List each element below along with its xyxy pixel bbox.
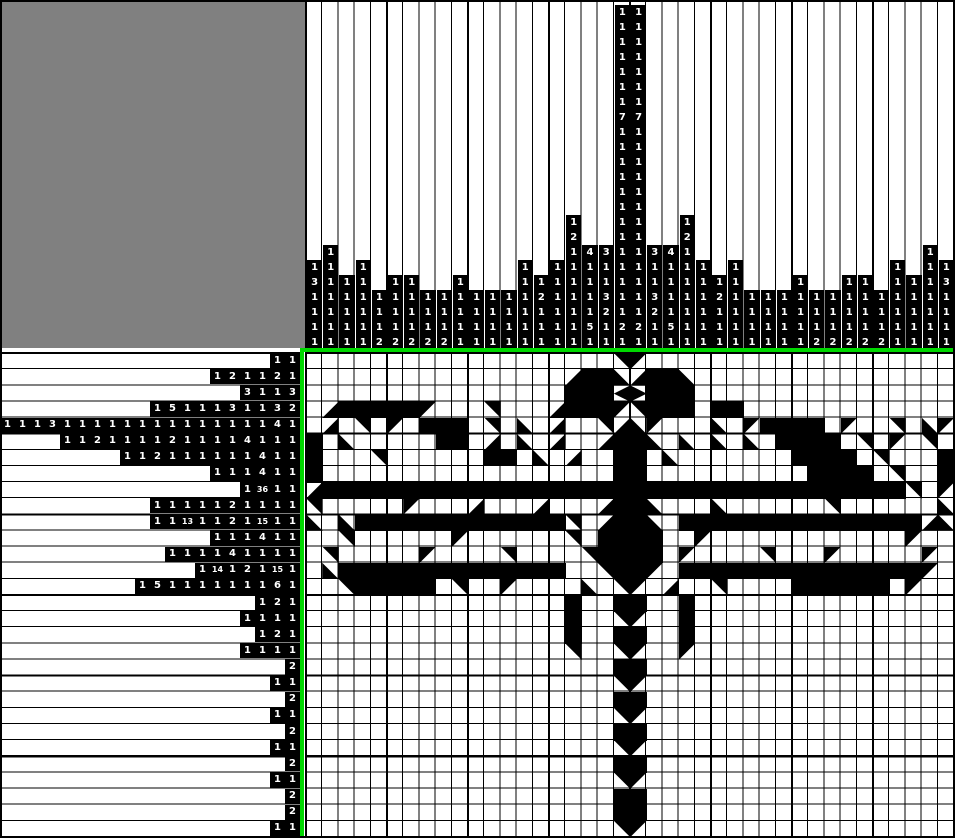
- row-clue-cell[interactable]: 4: [225, 547, 240, 562]
- grid-cell-full-square[interactable]: [743, 514, 760, 531]
- row-clue-cell[interactable]: 4: [255, 450, 270, 465]
- grid-cell-full-square[interactable]: [549, 563, 566, 580]
- grid-cell-full-square[interactable]: [419, 418, 436, 435]
- row-clue-cell[interactable]: 2: [150, 450, 165, 465]
- col-clue-cell[interactable]: 1: [615, 305, 630, 320]
- row-clue-cell[interactable]: 2: [285, 401, 300, 416]
- row-clue-cell[interactable]: 1: [285, 563, 300, 578]
- col-clue-cell[interactable]: 1: [534, 275, 549, 290]
- col-clue-cell[interactable]: 1: [647, 275, 662, 290]
- row-clue-cell[interactable]: 2: [225, 498, 240, 513]
- row-clue-cell[interactable]: 2: [225, 369, 240, 384]
- row-clue-cell[interactable]: 1: [210, 369, 225, 384]
- grid-cell-full-square[interactable]: [598, 401, 615, 418]
- col-clue-cell[interactable]: 2: [680, 230, 695, 245]
- col-clue-cell[interactable]: 3: [647, 245, 662, 260]
- row-clue-cell[interactable]: 1: [210, 434, 225, 449]
- grid-cell-full-square[interactable]: [565, 401, 582, 418]
- grid-cell-full-square[interactable]: [711, 514, 728, 531]
- grid-cell-full-square[interactable]: [371, 401, 388, 418]
- row-clue-cell[interactable]: 1: [285, 353, 300, 368]
- col-clue-cell[interactable]: 1: [550, 290, 565, 305]
- col-clue-cell[interactable]: 1: [890, 275, 905, 290]
- col-clue-cell[interactable]: 1: [356, 305, 371, 320]
- grid-cell-full-square[interactable]: [646, 369, 663, 386]
- col-clue-cell[interactable]: 1: [518, 320, 533, 335]
- row-clue-cell[interactable]: 1: [60, 434, 75, 449]
- col-clue-cell[interactable]: 1: [631, 50, 646, 65]
- col-clue-cell[interactable]: 1: [501, 305, 516, 320]
- col-clue-cell[interactable]: 1: [388, 290, 403, 305]
- row-clue-cell[interactable]: 1: [255, 401, 270, 416]
- row-clue-cell[interactable]: 1: [270, 514, 285, 529]
- row-clue-cell[interactable]: 1: [255, 595, 270, 610]
- row-clue-cell[interactable]: 1: [285, 740, 300, 755]
- col-clue-cell[interactable]: 1: [566, 245, 581, 260]
- col-clue-cell[interactable]: 1: [631, 305, 646, 320]
- grid-cell-full-square[interactable]: [614, 692, 631, 709]
- grid-cell-full-square[interactable]: [581, 385, 598, 402]
- grid-cell-full-square[interactable]: [792, 579, 809, 596]
- grid-cell-full-square[interactable]: [841, 563, 858, 580]
- row-clue-cell[interactable]: 1: [285, 547, 300, 562]
- row-clue-cell[interactable]: 1: [210, 418, 225, 433]
- grid-cell-full-square[interactable]: [679, 482, 696, 499]
- row-clue-cell[interactable]: 4: [270, 418, 285, 433]
- grid-cell-full-square[interactable]: [743, 482, 760, 499]
- row-clue-cell[interactable]: 1: [195, 450, 210, 465]
- row-clue-cell[interactable]: 1: [255, 369, 270, 384]
- col-clue-cell[interactable]: 1: [842, 275, 857, 290]
- grid-cell-full-square[interactable]: [387, 563, 404, 580]
- grid-cell-full-square[interactable]: [662, 369, 679, 386]
- col-clue-cell[interactable]: 1: [372, 290, 387, 305]
- col-clue-cell[interactable]: 5: [582, 320, 597, 335]
- col-clue-cell[interactable]: 1: [761, 305, 776, 320]
- row-clue-cell[interactable]: 1: [225, 579, 240, 594]
- grid-cell-full-square[interactable]: [760, 563, 777, 580]
- col-clue-cell[interactable]: 2: [631, 320, 646, 335]
- col-clue-cell[interactable]: 1: [599, 275, 614, 290]
- row-clue-cell[interactable]: 6: [270, 579, 285, 594]
- col-clue-cell[interactable]: 1: [404, 320, 419, 335]
- col-clue-cell[interactable]: 1: [825, 320, 840, 335]
- row-clue-cell[interactable]: 1: [255, 434, 270, 449]
- col-clue-cell[interactable]: 1: [696, 275, 711, 290]
- row-clue-cell[interactable]: 1: [195, 579, 210, 594]
- row-clue-cell[interactable]: 1: [150, 434, 165, 449]
- grid-cell-full-square[interactable]: [403, 514, 420, 531]
- row-clue-cell[interactable]: 3: [45, 418, 60, 433]
- row-clue-cell[interactable]: 1: [105, 434, 120, 449]
- col-clue-cell[interactable]: 1: [356, 275, 371, 290]
- grid-cell-full-square[interactable]: [452, 418, 469, 435]
- row-clue-cell[interactable]: 1: [285, 676, 300, 691]
- col-clue-cell[interactable]: 1: [631, 95, 646, 110]
- grid-cell-full-square[interactable]: [549, 514, 566, 531]
- grid-cell-full-square[interactable]: [808, 514, 825, 531]
- col-clue-cell[interactable]: 1: [420, 305, 435, 320]
- col-clue-cell[interactable]: 1: [890, 320, 905, 335]
- col-clue-cell[interactable]: 2: [534, 290, 549, 305]
- grid-cell-full-square[interactable]: [630, 450, 647, 467]
- row-clue-cell[interactable]: 1: [240, 643, 255, 658]
- row-clue-cell[interactable]: 3: [270, 401, 285, 416]
- col-clue-cell[interactable]: 1: [485, 290, 500, 305]
- row-clue-cell[interactable]: 1: [210, 450, 225, 465]
- grid-cell-full-square[interactable]: [598, 369, 615, 386]
- col-clue-cell[interactable]: 1: [939, 305, 954, 320]
- col-clue-cell[interactable]: 1: [566, 320, 581, 335]
- col-clue-cell[interactable]: 1: [469, 290, 484, 305]
- grid-cell-full-square[interactable]: [614, 724, 631, 741]
- col-clue-cell[interactable]: 1: [323, 320, 338, 335]
- grid-cell-full-square[interactable]: [630, 724, 647, 741]
- grid-cell-full-square[interactable]: [630, 563, 647, 580]
- row-clue-cell[interactable]: 1: [270, 434, 285, 449]
- col-clue-cell[interactable]: 1: [712, 305, 727, 320]
- col-clue-cell[interactable]: 1: [307, 320, 322, 335]
- grid-cell-full-square[interactable]: [484, 514, 501, 531]
- col-clue-cell[interactable]: 1: [663, 260, 678, 275]
- grid-cell-full-square[interactable]: [679, 563, 696, 580]
- grid-cell-full-square[interactable]: [938, 466, 955, 483]
- col-clue-cell[interactable]: 1: [404, 290, 419, 305]
- col-clue-cell[interactable]: 1: [631, 65, 646, 80]
- col-clue-cell[interactable]: 2: [599, 305, 614, 320]
- row-clue-cell[interactable]: 2: [225, 514, 240, 529]
- row-clue-cell[interactable]: 1: [285, 579, 300, 594]
- row-clue-cell[interactable]: 1: [270, 450, 285, 465]
- grid-cell-full-square[interactable]: [306, 450, 323, 467]
- grid-cell-full-square[interactable]: [565, 385, 582, 402]
- grid-cell-full-square[interactable]: [824, 450, 841, 467]
- grid-cell-full-square[interactable]: [338, 563, 355, 580]
- grid-cell-full-square[interactable]: [808, 434, 825, 451]
- row-clue-cell[interactable]: 1: [195, 434, 210, 449]
- col-clue-cell[interactable]: 1: [323, 245, 338, 260]
- grid-cell-full-square[interactable]: [517, 482, 534, 499]
- grid-cell-full-square[interactable]: [938, 450, 955, 467]
- grid-cell-full-square[interactable]: [355, 482, 372, 499]
- grid-cell-full-square[interactable]: [306, 434, 323, 451]
- row-clue-cell[interactable]: 1: [135, 434, 150, 449]
- col-clue-cell[interactable]: 1: [339, 320, 354, 335]
- grid-cell-full-square[interactable]: [711, 563, 728, 580]
- col-clue-cell[interactable]: 2: [566, 230, 581, 245]
- grid-cell-full-square[interactable]: [500, 563, 517, 580]
- grid-cell-full-square[interactable]: [695, 514, 712, 531]
- row-clue-cell[interactable]: 1: [135, 418, 150, 433]
- col-clue-cell[interactable]: 3: [599, 245, 614, 260]
- col-clue-cell[interactable]: 5: [663, 320, 678, 335]
- col-clue-cell[interactable]: 1: [420, 290, 435, 305]
- row-clue-cell[interactable]: 36: [255, 482, 270, 497]
- col-clue-cell[interactable]: 1: [761, 320, 776, 335]
- row-clue-cell[interactable]: 1: [195, 563, 210, 578]
- row-clue-cell[interactable]: 4: [240, 434, 255, 449]
- row-clue-cell[interactable]: 3: [285, 385, 300, 400]
- col-clue-cell[interactable]: 1: [615, 65, 630, 80]
- col-clue-cell[interactable]: 1: [842, 290, 857, 305]
- col-clue-cell[interactable]: 1: [307, 260, 322, 275]
- row-clue-cell[interactable]: 1: [195, 418, 210, 433]
- row-clue-cell[interactable]: 2: [270, 369, 285, 384]
- col-clue-cell[interactable]: 3: [599, 290, 614, 305]
- grid-cell-full-square[interactable]: [824, 482, 841, 499]
- col-clue-cell[interactable]: 1: [615, 140, 630, 155]
- grid-cell-full-square[interactable]: [857, 579, 874, 596]
- grid-cell-full-square[interactable]: [387, 482, 404, 499]
- grid-cell-full-square[interactable]: [679, 595, 696, 612]
- grid-cell-full-square[interactable]: [614, 805, 631, 822]
- row-clue-cell[interactable]: 2: [285, 789, 300, 804]
- col-clue-cell[interactable]: 1: [631, 290, 646, 305]
- grid-cell-full-square[interactable]: [484, 563, 501, 580]
- col-clue-cell[interactable]: 1: [372, 305, 387, 320]
- row-clue-cell[interactable]: 1: [210, 547, 225, 562]
- grid-cell-full-square[interactable]: [824, 466, 841, 483]
- grid-cell-full-square[interactable]: [436, 418, 453, 435]
- col-clue-cell[interactable]: 1: [615, 290, 630, 305]
- col-clue-cell[interactable]: 1: [518, 275, 533, 290]
- grid-cell-full-square[interactable]: [873, 482, 890, 499]
- col-clue-cell[interactable]: 1: [615, 155, 630, 170]
- col-clue-cell[interactable]: 1: [615, 35, 630, 50]
- grid-cell-full-square[interactable]: [662, 401, 679, 418]
- grid-cell-full-square[interactable]: [630, 627, 647, 644]
- col-clue-cell[interactable]: 1: [518, 260, 533, 275]
- row-clue-cell[interactable]: 1: [285, 418, 300, 433]
- grid-cell-full-square[interactable]: [614, 514, 631, 531]
- grid-cell-full-square[interactable]: [857, 514, 874, 531]
- row-clue-cell[interactable]: 5: [150, 579, 165, 594]
- col-clue-cell[interactable]: 3: [307, 275, 322, 290]
- grid-cell-full-square[interactable]: [711, 482, 728, 499]
- row-clue-cell[interactable]: 1: [180, 579, 195, 594]
- grid-cell-full-square[interactable]: [565, 595, 582, 612]
- col-clue-cell[interactable]: 1: [825, 305, 840, 320]
- col-clue-cell[interactable]: 1: [631, 215, 646, 230]
- grid-cell-full-square[interactable]: [630, 547, 647, 564]
- col-clue-cell[interactable]: 1: [906, 320, 921, 335]
- col-clue-cell[interactable]: 1: [339, 305, 354, 320]
- row-clue-cell[interactable]: 1: [0, 418, 15, 433]
- col-clue-cell[interactable]: 1: [420, 320, 435, 335]
- col-clue-cell[interactable]: 1: [582, 305, 597, 320]
- col-clue-cell[interactable]: 1: [825, 290, 840, 305]
- col-clue-cell[interactable]: 1: [809, 320, 824, 335]
- col-clue-cell[interactable]: 1: [923, 290, 938, 305]
- row-clue-cell[interactable]: 1: [105, 418, 120, 433]
- row-clue-cell[interactable]: 1: [210, 514, 225, 529]
- col-clue-cell[interactable]: 1: [744, 290, 759, 305]
- row-clue-cell[interactable]: 15: [255, 514, 270, 529]
- col-clue-cell[interactable]: 1: [356, 290, 371, 305]
- row-clue-cell[interactable]: 4: [255, 466, 270, 481]
- grid-cell-full-square[interactable]: [808, 466, 825, 483]
- row-clue-cell[interactable]: 1: [285, 498, 300, 513]
- col-clue-cell[interactable]: 1: [923, 245, 938, 260]
- col-clue-cell[interactable]: 1: [744, 320, 759, 335]
- col-clue-cell[interactable]: 1: [469, 320, 484, 335]
- grid-cell-full-square[interactable]: [468, 482, 485, 499]
- row-clue-cell[interactable]: 2: [285, 805, 300, 820]
- grid-cell-full-square[interactable]: [598, 547, 615, 564]
- grid-cell-full-square[interactable]: [614, 482, 631, 499]
- row-clue-cell[interactable]: 1: [240, 579, 255, 594]
- grid-cell-full-square[interactable]: [857, 466, 874, 483]
- row-clue-cell[interactable]: 1: [165, 547, 180, 562]
- grid-cell-full-square[interactable]: [873, 563, 890, 580]
- grid-cell-full-square[interactable]: [727, 563, 744, 580]
- row-clue-cell[interactable]: 2: [90, 434, 105, 449]
- row-clue-cell[interactable]: 1: [195, 514, 210, 529]
- col-clue-cell[interactable]: 1: [939, 290, 954, 305]
- col-clue-cell[interactable]: 1: [923, 275, 938, 290]
- col-clue-cell[interactable]: 4: [582, 245, 597, 260]
- grid-cell-full-square[interactable]: [614, 756, 631, 773]
- row-clue-cell[interactable]: 1: [285, 708, 300, 723]
- col-clue-cell[interactable]: 1: [453, 320, 468, 335]
- col-clue-cell[interactable]: 1: [663, 305, 678, 320]
- row-clue-cell[interactable]: 2: [285, 756, 300, 771]
- col-clue-cell[interactable]: 1: [890, 260, 905, 275]
- grid-cell-full-square[interactable]: [517, 514, 534, 531]
- grid-cell-full-square[interactable]: [419, 579, 436, 596]
- col-clue-cell[interactable]: 1: [615, 20, 630, 35]
- row-clue-cell[interactable]: 1: [270, 772, 285, 787]
- col-clue-cell[interactable]: 1: [631, 260, 646, 275]
- grid-cell-full-square[interactable]: [630, 789, 647, 806]
- col-clue-cell[interactable]: 1: [777, 320, 792, 335]
- row-clue-cell[interactable]: 1: [180, 547, 195, 562]
- col-clue-cell[interactable]: 1: [680, 275, 695, 290]
- col-clue-cell[interactable]: 1: [744, 305, 759, 320]
- grid-cell-full-square[interactable]: [841, 450, 858, 467]
- grid-cell-full-square[interactable]: [646, 547, 663, 564]
- col-clue-cell[interactable]: 1: [793, 320, 808, 335]
- col-clue-cell[interactable]: 1: [696, 305, 711, 320]
- grid-cell-full-square[interactable]: [565, 482, 582, 499]
- col-clue-cell[interactable]: 1: [453, 290, 468, 305]
- col-clue-cell[interactable]: 1: [550, 320, 565, 335]
- grid-cell-full-square[interactable]: [355, 579, 372, 596]
- col-clue-cell[interactable]: 1: [631, 5, 646, 20]
- grid-cell-full-square[interactable]: [614, 466, 631, 483]
- row-clue-cell[interactable]: 1: [240, 498, 255, 513]
- row-clue-cell[interactable]: 1: [240, 514, 255, 529]
- grid-cell-full-square[interactable]: [614, 789, 631, 806]
- col-clue-cell[interactable]: 1: [858, 275, 873, 290]
- col-clue-cell[interactable]: 1: [647, 260, 662, 275]
- col-clue-cell[interactable]: 7: [631, 110, 646, 125]
- col-clue-cell[interactable]: 1: [631, 230, 646, 245]
- col-clue-cell[interactable]: 1: [680, 290, 695, 305]
- row-clue-cell[interactable]: 1: [30, 418, 45, 433]
- row-clue-cell[interactable]: 1: [180, 498, 195, 513]
- col-clue-cell[interactable]: 1: [680, 320, 695, 335]
- grid-cell-full-square[interactable]: [500, 514, 517, 531]
- row-clue-cell[interactable]: 5: [165, 401, 180, 416]
- grid-cell-full-square[interactable]: [711, 401, 728, 418]
- col-clue-cell[interactable]: 1: [501, 320, 516, 335]
- grid-cell-full-square[interactable]: [614, 498, 631, 515]
- col-clue-cell[interactable]: 1: [307, 290, 322, 305]
- col-clue-cell[interactable]: 1: [566, 290, 581, 305]
- col-clue-cell[interactable]: 1: [680, 305, 695, 320]
- row-clue-cell[interactable]: 1: [285, 434, 300, 449]
- grid-cell-full-square[interactable]: [371, 563, 388, 580]
- col-clue-cell[interactable]: 1: [323, 275, 338, 290]
- row-clue-cell[interactable]: 1: [240, 530, 255, 545]
- row-clue-cell[interactable]: 1: [210, 530, 225, 545]
- grid-cell-full-square[interactable]: [630, 466, 647, 483]
- row-clue-cell[interactable]: 1: [255, 563, 270, 578]
- col-clue-cell[interactable]: 1: [631, 80, 646, 95]
- col-clue-cell[interactable]: 1: [906, 305, 921, 320]
- row-clue-cell[interactable]: 1: [285, 450, 300, 465]
- row-clue-cell[interactable]: 1: [240, 547, 255, 562]
- grid-cell-full-square[interactable]: [873, 514, 890, 531]
- grid-cell-full-square[interactable]: [581, 482, 598, 499]
- row-clue-cell[interactable]: 1: [270, 547, 285, 562]
- grid-cell-full-square[interactable]: [614, 434, 631, 451]
- row-clue-cell[interactable]: 1: [210, 401, 225, 416]
- grid-cell-full-square[interactable]: [792, 563, 809, 580]
- col-clue-cell[interactable]: 1: [761, 290, 776, 305]
- grid-cell-full-square[interactable]: [857, 482, 874, 499]
- col-clue-cell[interactable]: 2: [647, 305, 662, 320]
- row-clue-cell[interactable]: 1: [285, 595, 300, 610]
- grid-cell-full-square[interactable]: [824, 563, 841, 580]
- col-clue-cell[interactable]: 1: [939, 320, 954, 335]
- row-clue-cell[interactable]: 1: [195, 401, 210, 416]
- col-clue-cell[interactable]: 2: [712, 290, 727, 305]
- row-clue-cell[interactable]: 2: [270, 627, 285, 642]
- row-clue-cell[interactable]: 1: [240, 466, 255, 481]
- grid-cell-full-square[interactable]: [776, 418, 793, 435]
- row-clue-cell[interactable]: 1: [225, 434, 240, 449]
- row-clue-cell[interactable]: 1: [120, 450, 135, 465]
- row-clue-cell[interactable]: 1: [135, 579, 150, 594]
- grid-cell-full-square[interactable]: [630, 434, 647, 451]
- col-clue-cell[interactable]: 1: [696, 290, 711, 305]
- col-clue-cell[interactable]: 1: [631, 155, 646, 170]
- col-clue-cell[interactable]: 1: [550, 260, 565, 275]
- grid-cell-full-square[interactable]: [565, 611, 582, 628]
- grid-cell-full-square[interactable]: [857, 563, 874, 580]
- grid-cell-full-square[interactable]: [500, 482, 517, 499]
- row-clue-cell[interactable]: 1: [285, 772, 300, 787]
- row-clue-cell[interactable]: 1: [225, 530, 240, 545]
- row-clue-cell[interactable]: 3: [225, 401, 240, 416]
- grid-cell-full-square[interactable]: [776, 514, 793, 531]
- row-clue-cell[interactable]: 2: [165, 434, 180, 449]
- col-clue-cell[interactable]: 1: [631, 200, 646, 215]
- row-clue-cell[interactable]: 1: [285, 643, 300, 658]
- grid-cell-full-square[interactable]: [679, 627, 696, 644]
- col-clue-cell[interactable]: 2: [615, 320, 630, 335]
- grid-cell-full-square[interactable]: [776, 563, 793, 580]
- col-clue-cell[interactable]: 1: [631, 170, 646, 185]
- grid-cell-full-square[interactable]: [695, 482, 712, 499]
- grid-cell-full-square[interactable]: [630, 692, 647, 709]
- row-clue-cell[interactable]: 1: [75, 418, 90, 433]
- row-clue-cell[interactable]: 1: [195, 498, 210, 513]
- grid-cell-full-square[interactable]: [760, 482, 777, 499]
- grid-cell-full-square[interactable]: [614, 530, 631, 547]
